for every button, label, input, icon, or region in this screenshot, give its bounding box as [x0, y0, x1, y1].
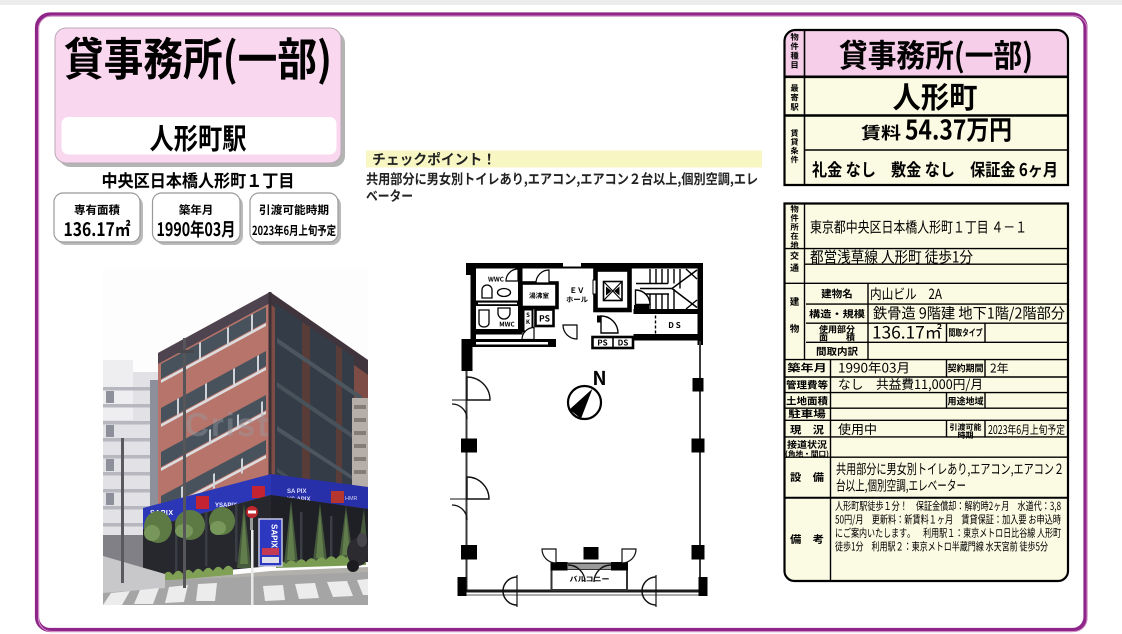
svg-text:Crist: Crist	[185, 406, 270, 443]
svg-text:SAPIX: SAPIX	[270, 524, 279, 549]
svg-text:SA PIX: SA PIX	[287, 489, 306, 495]
svg-text:HMR: HMR	[345, 496, 358, 502]
